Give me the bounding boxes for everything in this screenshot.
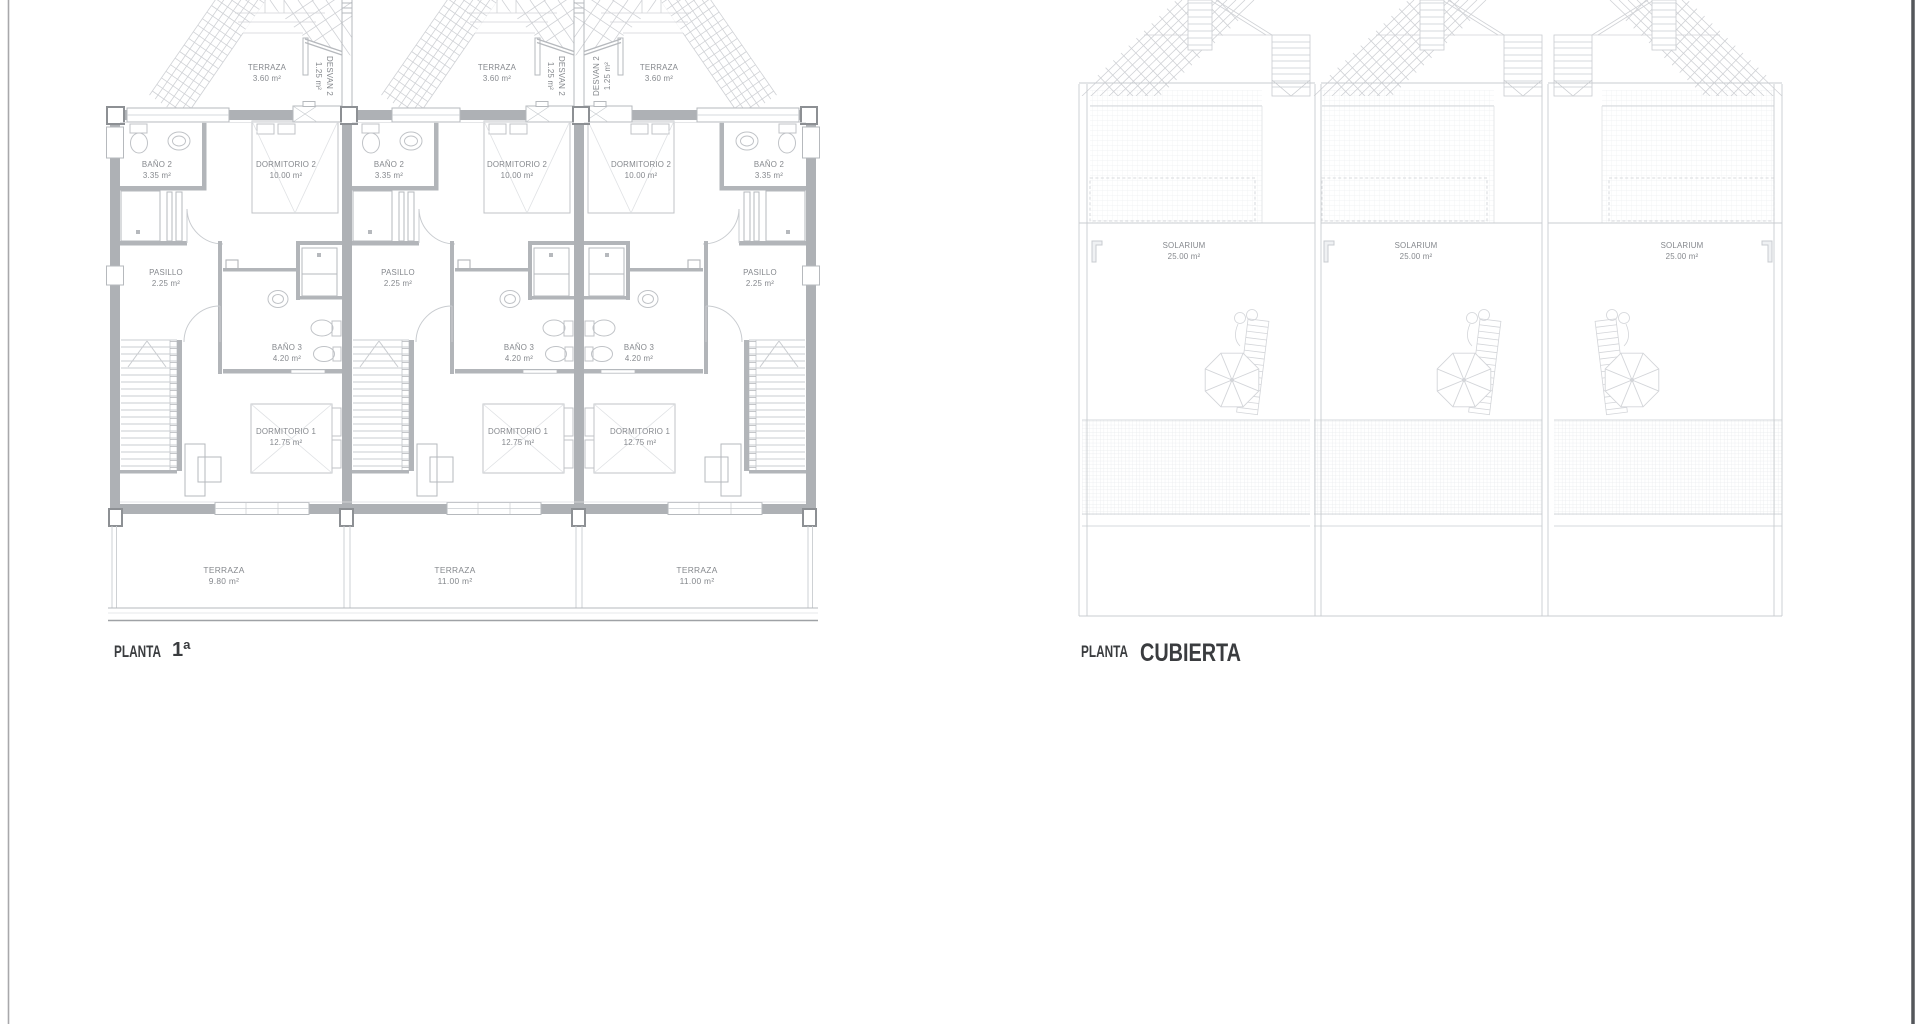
svg-text:SOLARIUM: SOLARIUM <box>1395 241 1438 250</box>
svg-text:DESVAN 2: DESVAN 2 <box>325 56 334 96</box>
svg-text:CUBIERTA: CUBIERTA <box>1140 639 1241 667</box>
svg-text:3.35 m²: 3.35 m² <box>143 171 171 180</box>
svg-text:12.75 m²: 12.75 m² <box>270 438 303 447</box>
svg-text:PASILLO: PASILLO <box>149 268 183 277</box>
svg-text:BAÑO 3: BAÑO 3 <box>504 343 535 352</box>
svg-text:DORMITORIO 2: DORMITORIO 2 <box>611 160 671 169</box>
svg-text:1.25 m²: 1.25 m² <box>314 62 323 90</box>
svg-text:3.35 m²: 3.35 m² <box>375 171 403 180</box>
svg-text:10.00 m²: 10.00 m² <box>270 171 303 180</box>
svg-text:2.25 m²: 2.25 m² <box>746 279 774 288</box>
svg-text:12.75 m²: 12.75 m² <box>502 438 535 447</box>
svg-text:SOLARIUM: SOLARIUM <box>1661 241 1704 250</box>
svg-text:25.00 m²: 25.00 m² <box>1400 252 1433 261</box>
svg-text:3.60 m²: 3.60 m² <box>483 74 511 83</box>
svg-text:25.00 m²: 25.00 m² <box>1666 252 1699 261</box>
svg-text:1ª: 1ª <box>172 639 191 661</box>
svg-text:1.25 m²: 1.25 m² <box>546 62 555 90</box>
svg-text:TERRAZA: TERRAZA <box>248 63 287 72</box>
svg-text:3.35 m²: 3.35 m² <box>755 171 783 180</box>
svg-text:3.60 m²: 3.60 m² <box>253 74 281 83</box>
svg-text:BAÑO 2: BAÑO 2 <box>374 160 404 169</box>
svg-text:12.75 m²: 12.75 m² <box>624 438 657 447</box>
svg-text:TERRAZA: TERRAZA <box>434 565 475 575</box>
svg-text:DESVAN 2: DESVAN 2 <box>592 56 601 96</box>
svg-text:2.25 m²: 2.25 m² <box>384 279 412 288</box>
svg-text:BAÑO 3: BAÑO 3 <box>624 343 655 352</box>
svg-text:11.00 m²: 11.00 m² <box>438 576 473 586</box>
svg-text:3.60 m²: 3.60 m² <box>645 74 673 83</box>
svg-text:PASILLO: PASILLO <box>381 268 415 277</box>
svg-text:BAÑO 3: BAÑO 3 <box>272 343 303 352</box>
svg-text:PLANTA: PLANTA <box>114 642 161 661</box>
svg-text:SOLARIUM: SOLARIUM <box>1163 241 1206 250</box>
svg-text:4.20 m²: 4.20 m² <box>625 354 653 363</box>
svg-text:TERRAZA: TERRAZA <box>676 565 717 575</box>
svg-text:DESVAN 2: DESVAN 2 <box>557 56 566 96</box>
svg-text:PASILLO: PASILLO <box>743 268 777 277</box>
svg-text:DORMITORIO 1: DORMITORIO 1 <box>488 427 548 436</box>
svg-text:DORMITORIO 1: DORMITORIO 1 <box>610 427 670 436</box>
svg-text:TERRAZA: TERRAZA <box>478 63 517 72</box>
svg-text:BAÑO 2: BAÑO 2 <box>142 160 172 169</box>
svg-text:PLANTA: PLANTA <box>1081 642 1128 661</box>
svg-text:10.00 m²: 10.00 m² <box>625 171 658 180</box>
svg-text:4.20 m²: 4.20 m² <box>273 354 301 363</box>
svg-text:9.80 m²: 9.80 m² <box>209 576 240 586</box>
svg-text:TERRAZA: TERRAZA <box>640 63 679 72</box>
svg-text:11.00 m²: 11.00 m² <box>680 576 715 586</box>
svg-text:DORMITORIO 2: DORMITORIO 2 <box>256 160 316 169</box>
svg-text:TERRAZA: TERRAZA <box>203 565 244 575</box>
svg-text:2.25 m²: 2.25 m² <box>152 279 180 288</box>
svg-text:1.25 m²: 1.25 m² <box>603 62 612 90</box>
svg-text:DORMITORIO 2: DORMITORIO 2 <box>487 160 547 169</box>
svg-text:BAÑO 2: BAÑO 2 <box>754 160 784 169</box>
svg-text:DORMITORIO 1: DORMITORIO 1 <box>256 427 316 436</box>
svg-text:25.00 m²: 25.00 m² <box>1168 252 1201 261</box>
svg-text:4.20 m²: 4.20 m² <box>505 354 533 363</box>
svg-text:10.00 m²: 10.00 m² <box>501 171 534 180</box>
